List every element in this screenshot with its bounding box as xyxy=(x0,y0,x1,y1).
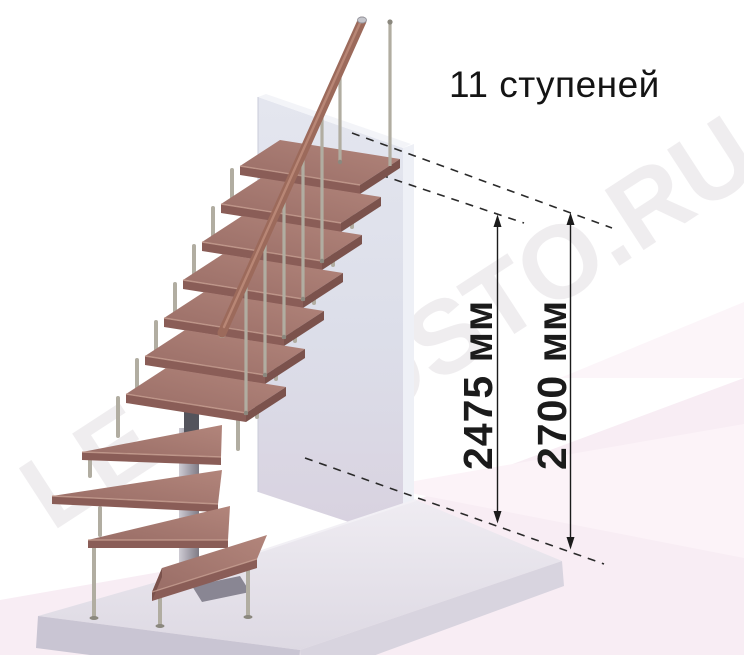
baluster-foot xyxy=(244,411,248,415)
baluster-foot xyxy=(338,160,342,164)
newel-cap xyxy=(387,19,392,24)
leg-foot xyxy=(244,615,253,619)
dimension-label-2475: 2475 мм xyxy=(455,300,501,470)
leg-foot xyxy=(156,624,165,628)
leg-foot xyxy=(90,616,99,620)
dimension-label-2700: 2700 мм xyxy=(529,300,575,470)
tread-front-face xyxy=(88,540,228,548)
baluster-foot xyxy=(320,259,324,263)
diagram-title: 11 ступеней xyxy=(449,64,660,105)
wall-side-face xyxy=(403,144,414,540)
baluster-foot xyxy=(282,335,286,339)
handrail-top-ferrule xyxy=(358,17,367,23)
staircase-diagram: ROSTO.RU LE xyxy=(0,0,744,655)
baluster-foot xyxy=(301,297,305,301)
diagram-canvas: ROSTO.RU LE xyxy=(0,0,744,655)
baluster-foot xyxy=(263,373,267,377)
